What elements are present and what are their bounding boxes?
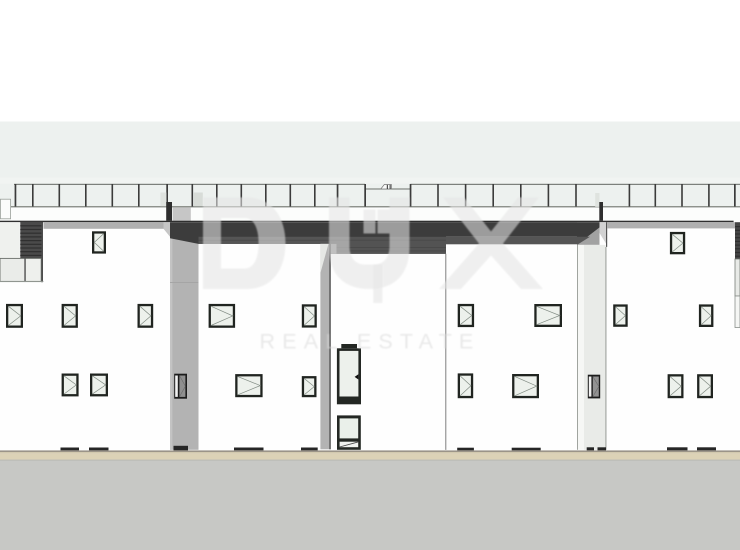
svg-text:REAL ESTATE: REAL ESTATE [260,330,481,354]
